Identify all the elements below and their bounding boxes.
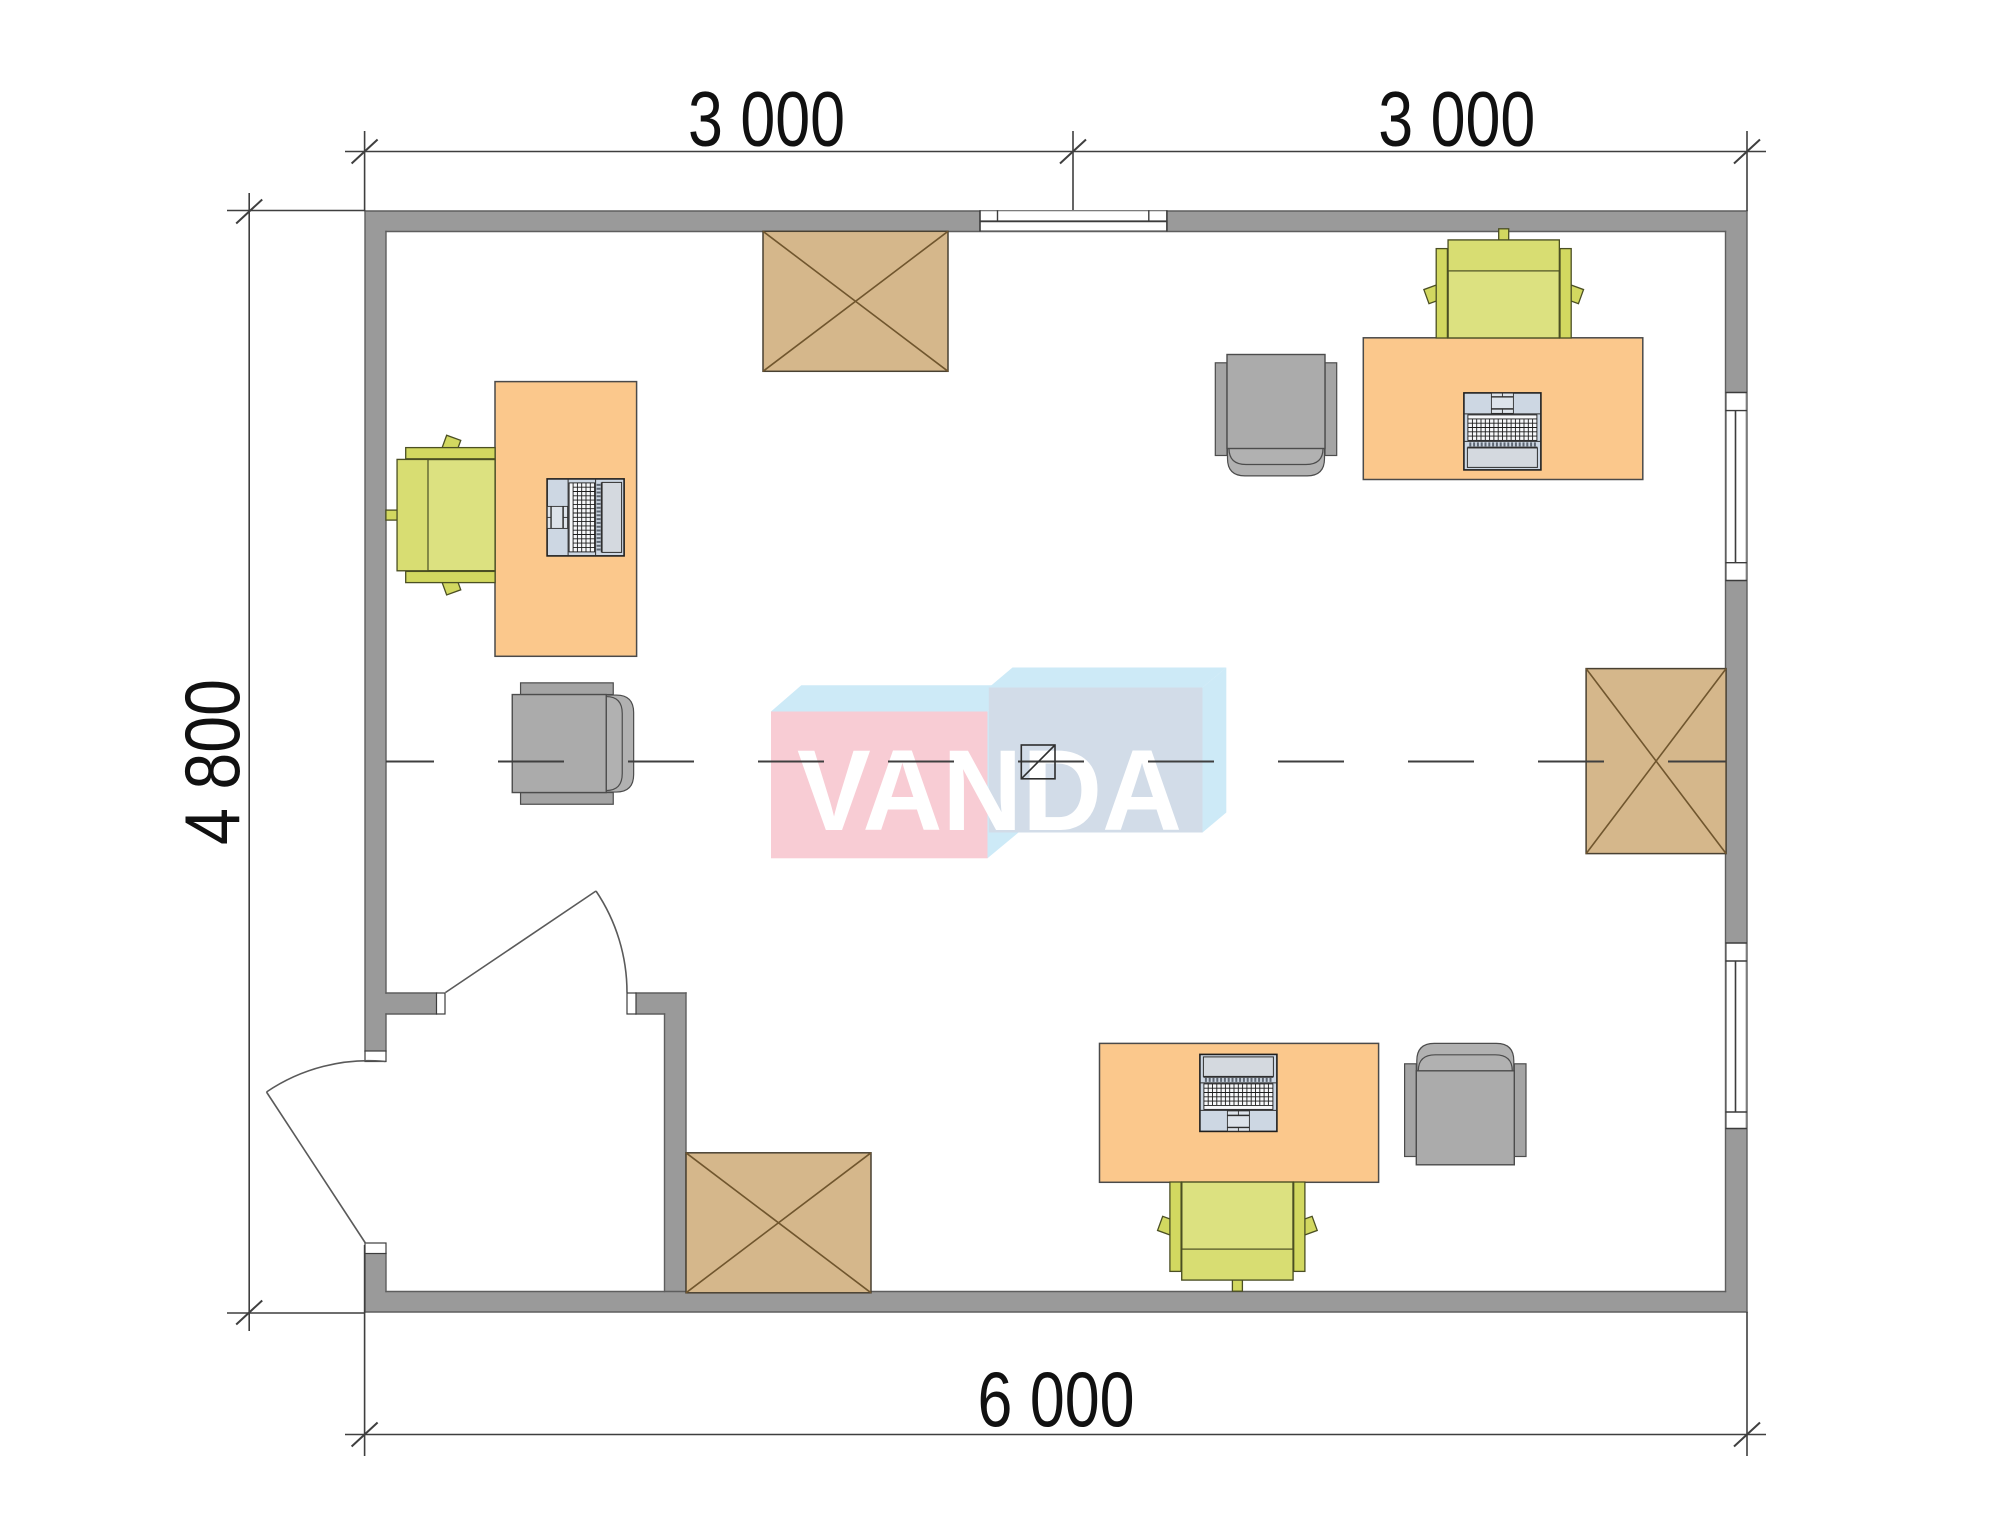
svg-text:6 000: 6 000 xyxy=(978,1355,1135,1443)
svg-text:3 000: 3 000 xyxy=(1378,75,1535,163)
svg-text:4 800: 4 800 xyxy=(168,679,256,845)
svg-text:VANDA: VANDA xyxy=(797,727,1182,855)
svg-text:3 000: 3 000 xyxy=(688,75,845,163)
